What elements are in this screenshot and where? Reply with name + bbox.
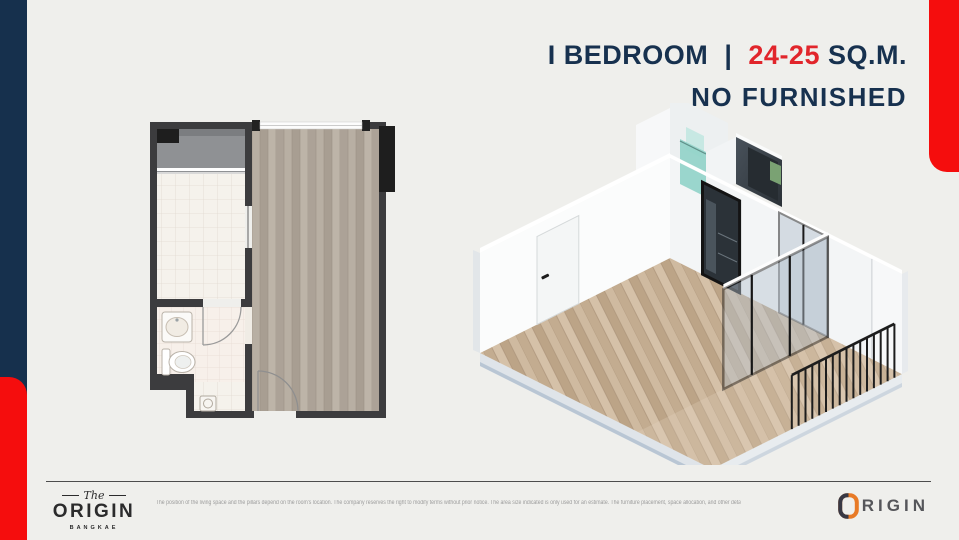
disclaimer-text: The position of the living space and the… [142,482,740,506]
brand-name: ORIGIN [46,502,142,523]
floor-plan-3d [440,103,940,465]
kitchen-area [157,174,245,299]
window-frame-block-right [379,126,395,192]
area-unit: SQ.M. [828,40,907,70]
window-frame-block-left [157,129,179,143]
top-window [260,122,362,129]
left-accent-bar-red [0,377,27,540]
origin-logo-text: RIGIN [862,496,929,516]
origin-logo: RIGIN [838,493,929,519]
top-window-stub2 [362,120,370,131]
left-accent-bar-navy [0,0,27,402]
hall-doorway [703,182,740,293]
washer-fixture [200,396,216,411]
wood-floor [252,129,379,411]
hall-opening [245,307,252,344]
brand-location: BANGKAE [46,525,142,531]
dash-left [62,495,79,496]
balcony-end-wall [872,259,908,374]
title-divider: | [716,40,740,70]
brand-logo: The ORIGIN BANGKAE [46,482,142,531]
sink-fixture [162,312,192,342]
origin-o-icon [838,493,859,519]
unit-type-line: I BEDROOM | 24-25 SQ.M. [548,34,907,77]
area-value: 24-25 [748,40,820,70]
dash-right [109,495,126,496]
footer-divider: The ORIGIN BANGKAE The position of the l… [46,481,931,531]
floor-plan-2d [148,116,396,428]
top-window-stub [252,120,260,131]
bedroom-count-label: I BEDROOM [548,40,709,70]
